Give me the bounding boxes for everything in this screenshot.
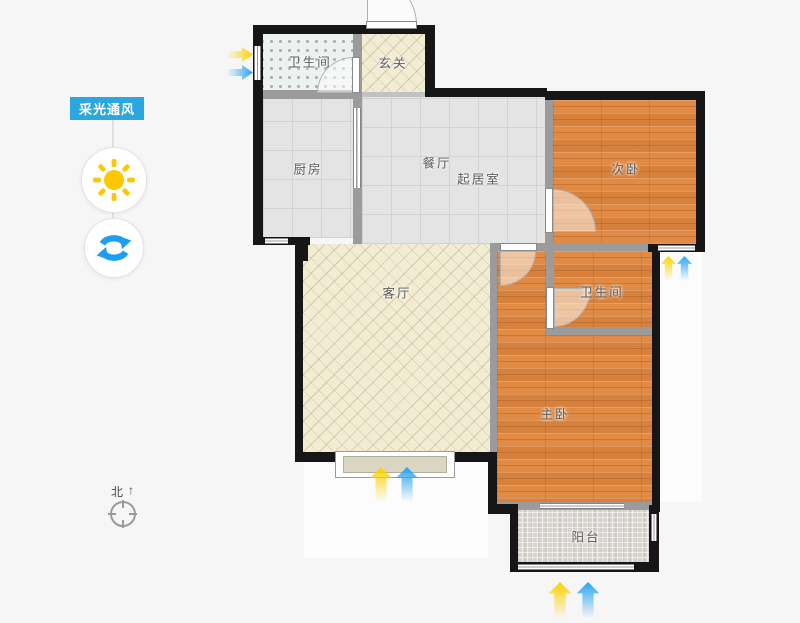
wall-segment [362, 92, 425, 97]
room-living [303, 244, 490, 453]
wall-segment [510, 505, 518, 572]
room-label-bedroom2: 次卧 [611, 159, 640, 178]
exterior-area [660, 252, 702, 502]
room-label-bathroom-mid: 卫生间 [580, 282, 624, 301]
room-label-kitchen: 厨房 [293, 159, 322, 178]
sun-icon [91, 157, 137, 203]
compass-tick [122, 500, 124, 508]
wall-segment [546, 327, 653, 335]
bathroom-mid-door [546, 287, 554, 329]
wall-segment [295, 244, 303, 462]
refresh-icon [95, 229, 133, 267]
wall-segment [253, 95, 263, 245]
lighting-ventilation-toggle-button[interactable]: 采光通风 [70, 97, 144, 120]
room-label-master: 主卧 [540, 404, 569, 423]
wall-segment [696, 91, 705, 252]
vent-arrow-blue-icon [396, 467, 418, 507]
wall-segment [545, 91, 705, 100]
room-label-family: 起居室 [457, 169, 501, 188]
compass-north-label: 北 [111, 483, 123, 500]
sliding-door [353, 108, 361, 188]
room-label-bathroom-top: 卫生间 [288, 52, 332, 71]
room-label-living: 客厅 [382, 283, 411, 302]
window [540, 503, 624, 509]
window [658, 245, 695, 251]
wall-segment [452, 452, 490, 462]
window [265, 238, 288, 244]
bathroom-top-door [352, 57, 360, 93]
compass-tick [129, 513, 137, 515]
wall-segment [298, 237, 308, 261]
window [254, 46, 261, 80]
compass-north-arrow-icon: ↑ [128, 483, 134, 497]
vent-arrow-blue-icon [227, 65, 253, 85]
light-arrow-yellow-icon [370, 467, 392, 507]
wall-segment [488, 504, 518, 514]
light-arrow-yellow-icon [227, 47, 253, 67]
vent-arrow-blue-icon [677, 256, 692, 286]
room-label-entry: 玄关 [378, 53, 407, 72]
window [518, 564, 634, 570]
floorplan-viewer: { "panel": { "toggle_label": "采光通风" }, "… [0, 0, 800, 600]
bedroom2-door [545, 188, 553, 233]
entry-door [366, 21, 417, 29]
compass-tick [122, 520, 124, 528]
master-door [500, 243, 537, 251]
room-dining-family [362, 97, 545, 244]
light-arrow-yellow-icon [548, 582, 572, 623]
light-arrow-yellow-icon [661, 256, 676, 286]
ventilation-refresh-button[interactable] [84, 218, 144, 278]
wall-segment [652, 250, 660, 512]
wall-segment [425, 25, 435, 95]
bay-window [335, 451, 455, 478]
compass-tick [108, 513, 116, 515]
wall-segment [425, 88, 547, 97]
wall-segment [490, 243, 497, 453]
room-label-dining: 餐厅 [422, 153, 451, 172]
vent-arrow-blue-icon [576, 582, 600, 623]
room-label-balcony: 阳台 [571, 527, 600, 546]
bay-window-sill [343, 456, 447, 473]
window [651, 514, 657, 541]
sunlight-button[interactable] [81, 147, 147, 213]
